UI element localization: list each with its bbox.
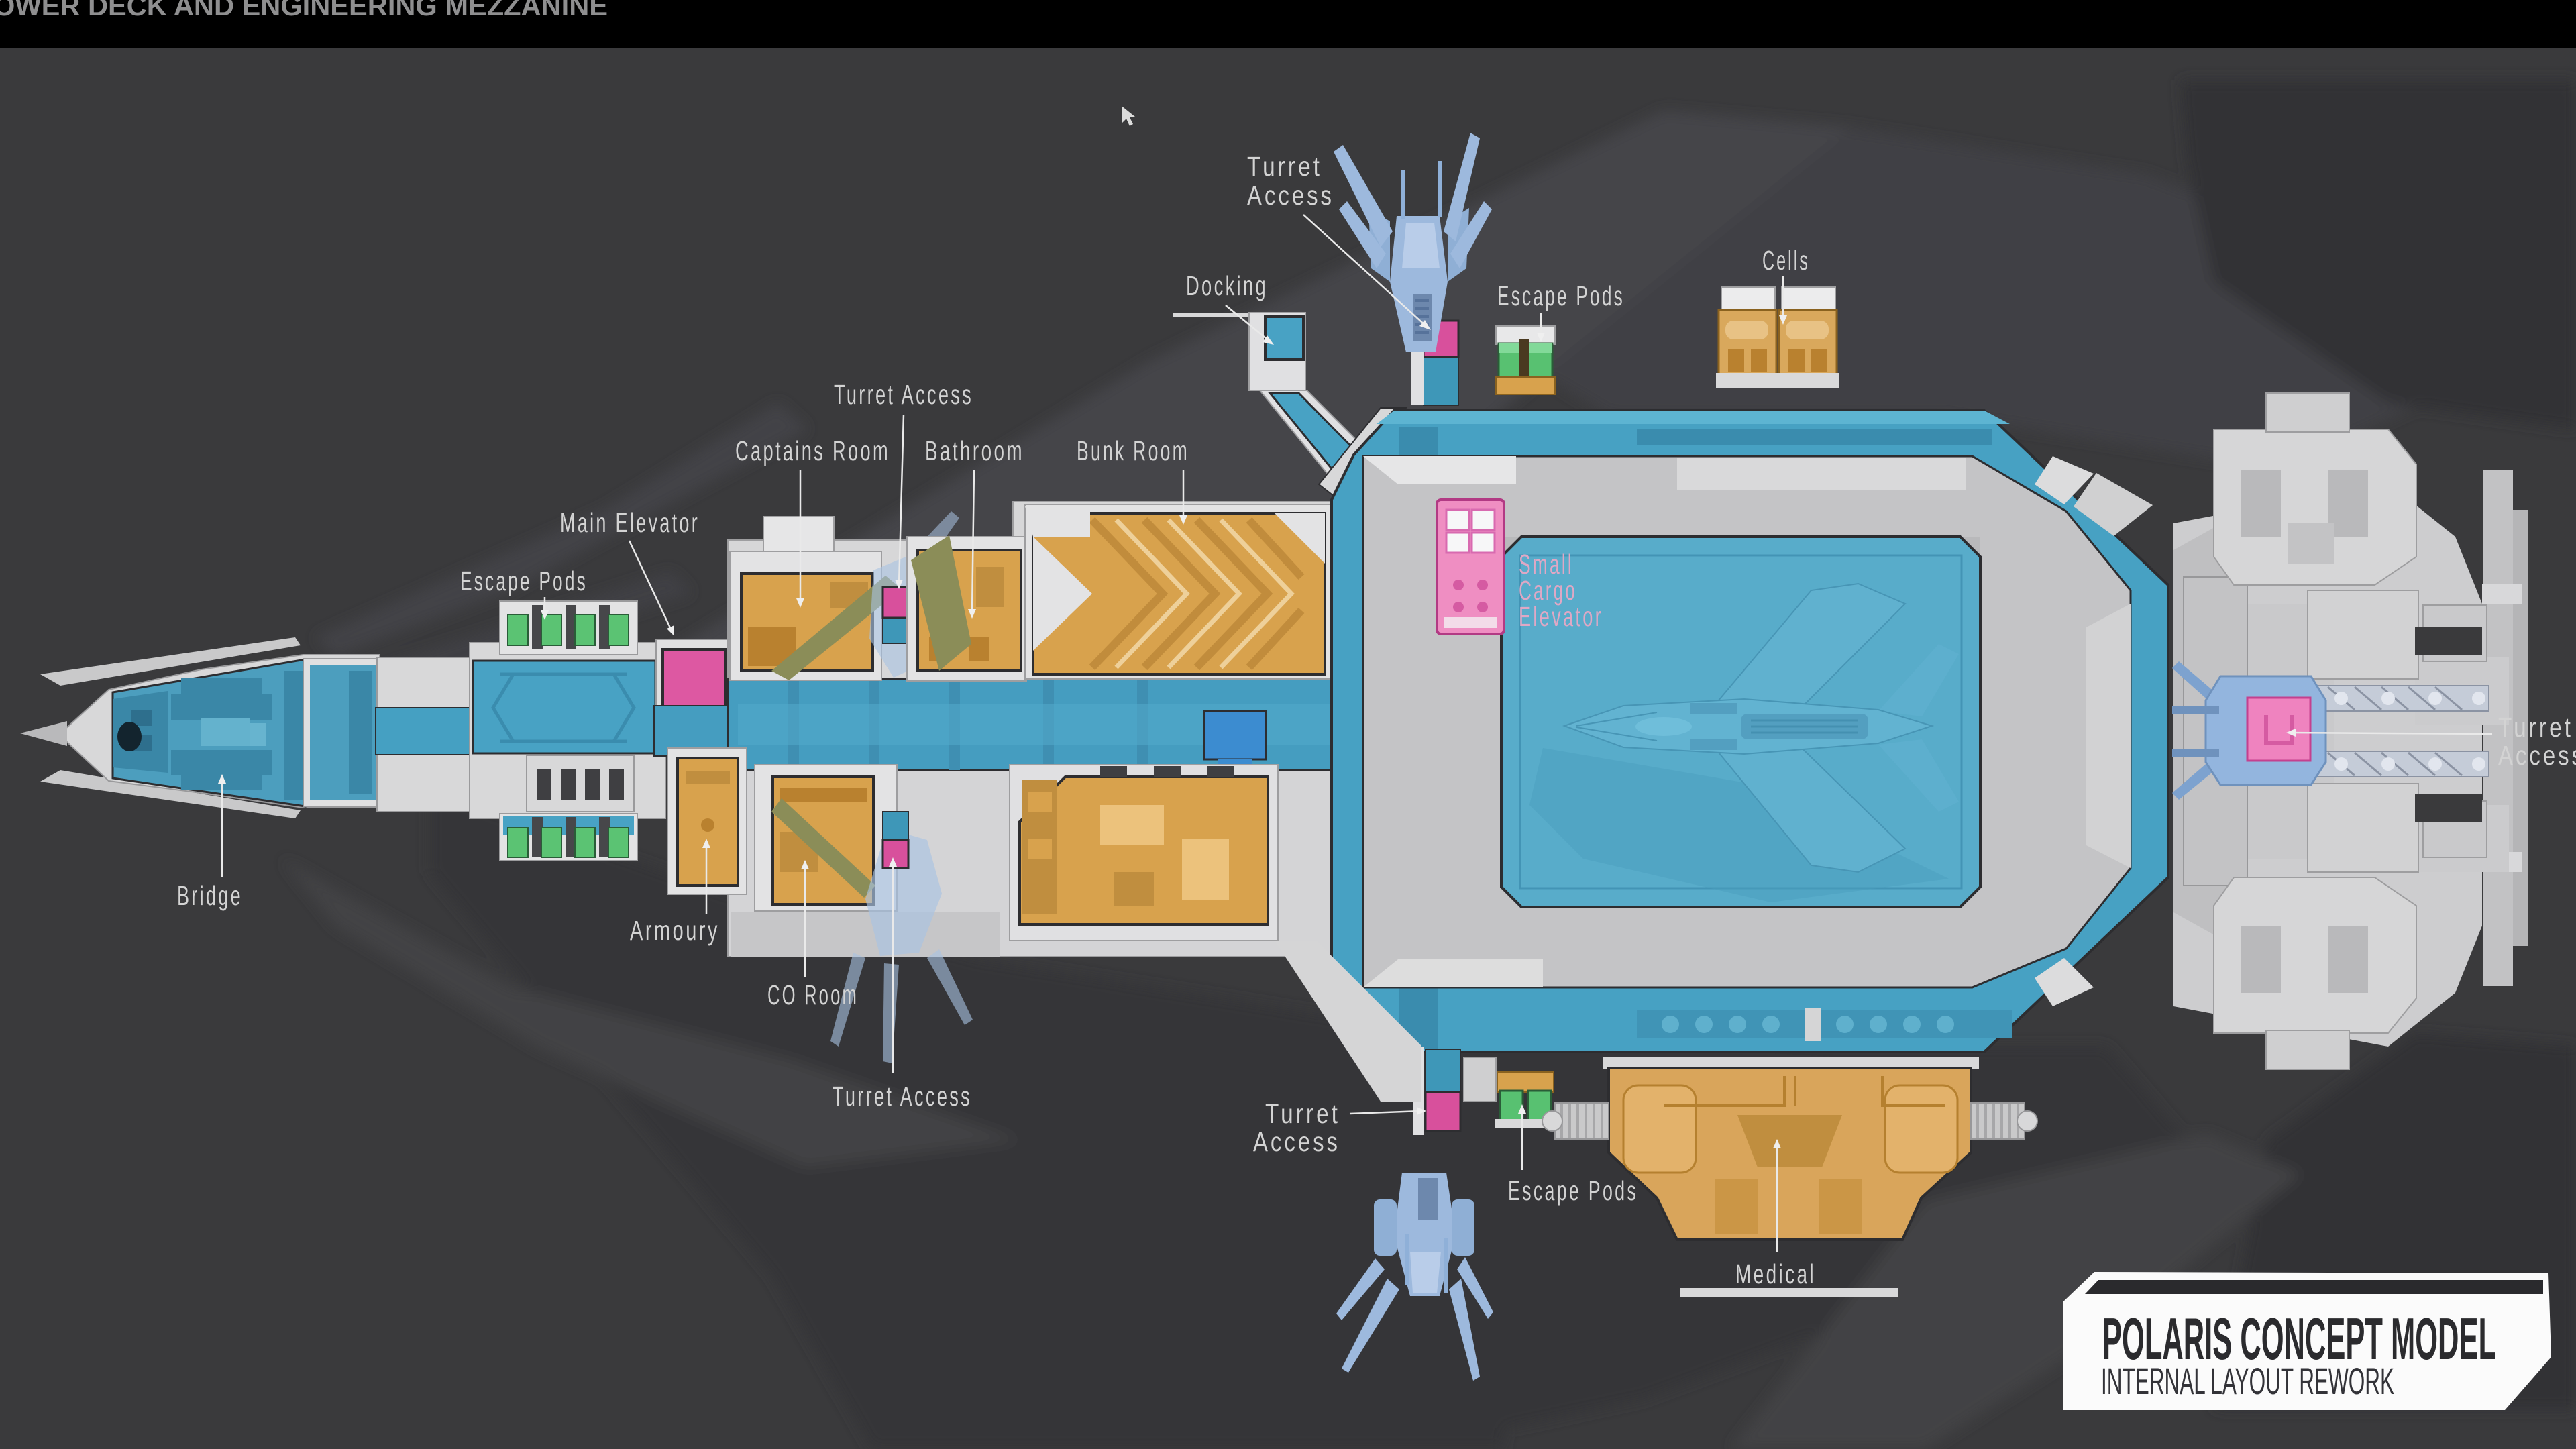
svg-text:Bunk Room: Bunk Room: [1077, 435, 1189, 466]
svg-text:Turret: Turret: [1247, 151, 1322, 182]
svg-text:Captains Room: Captains Room: [735, 435, 890, 466]
svg-text:Armoury: Armoury: [630, 915, 720, 946]
svg-text:Bridge: Bridge: [177, 880, 243, 911]
svg-text:Turret: Turret: [2498, 712, 2573, 743]
svg-text:Turret: Turret: [1265, 1098, 1340, 1129]
svg-text:Turret Access: Turret Access: [833, 1081, 972, 1112]
svg-text:Docking: Docking: [1186, 270, 1268, 301]
svg-text:INTERNAL LAYOUT REWORK: INTERNAL LAYOUT REWORK: [2101, 1360, 2394, 1402]
svg-text:Escape Pods: Escape Pods: [1508, 1175, 1638, 1206]
svg-text:Bathroom: Bathroom: [925, 435, 1024, 466]
svg-text:OWER DECK AND ENGINEERING MEZZ: OWER DECK AND ENGINEERING MEZZANINE: [0, 0, 608, 21]
svg-text:Escape Pods: Escape Pods: [460, 566, 588, 596]
svg-text:Access: Access: [2498, 740, 2576, 771]
svg-text:Cells: Cells: [1762, 245, 1810, 276]
svg-text:CO Room: CO Room: [767, 979, 859, 1010]
svg-text:Escape Pods: Escape Pods: [1497, 280, 1625, 311]
svg-text:Main Elevator: Main Elevator: [560, 507, 700, 538]
svg-text:Access: Access: [1247, 180, 1334, 211]
svg-text:Access: Access: [1253, 1126, 1340, 1157]
svg-text:Medical: Medical: [1735, 1258, 1816, 1289]
svg-text:Turret Access: Turret Access: [834, 379, 973, 410]
svg-text:Elevator: Elevator: [1519, 601, 1603, 632]
